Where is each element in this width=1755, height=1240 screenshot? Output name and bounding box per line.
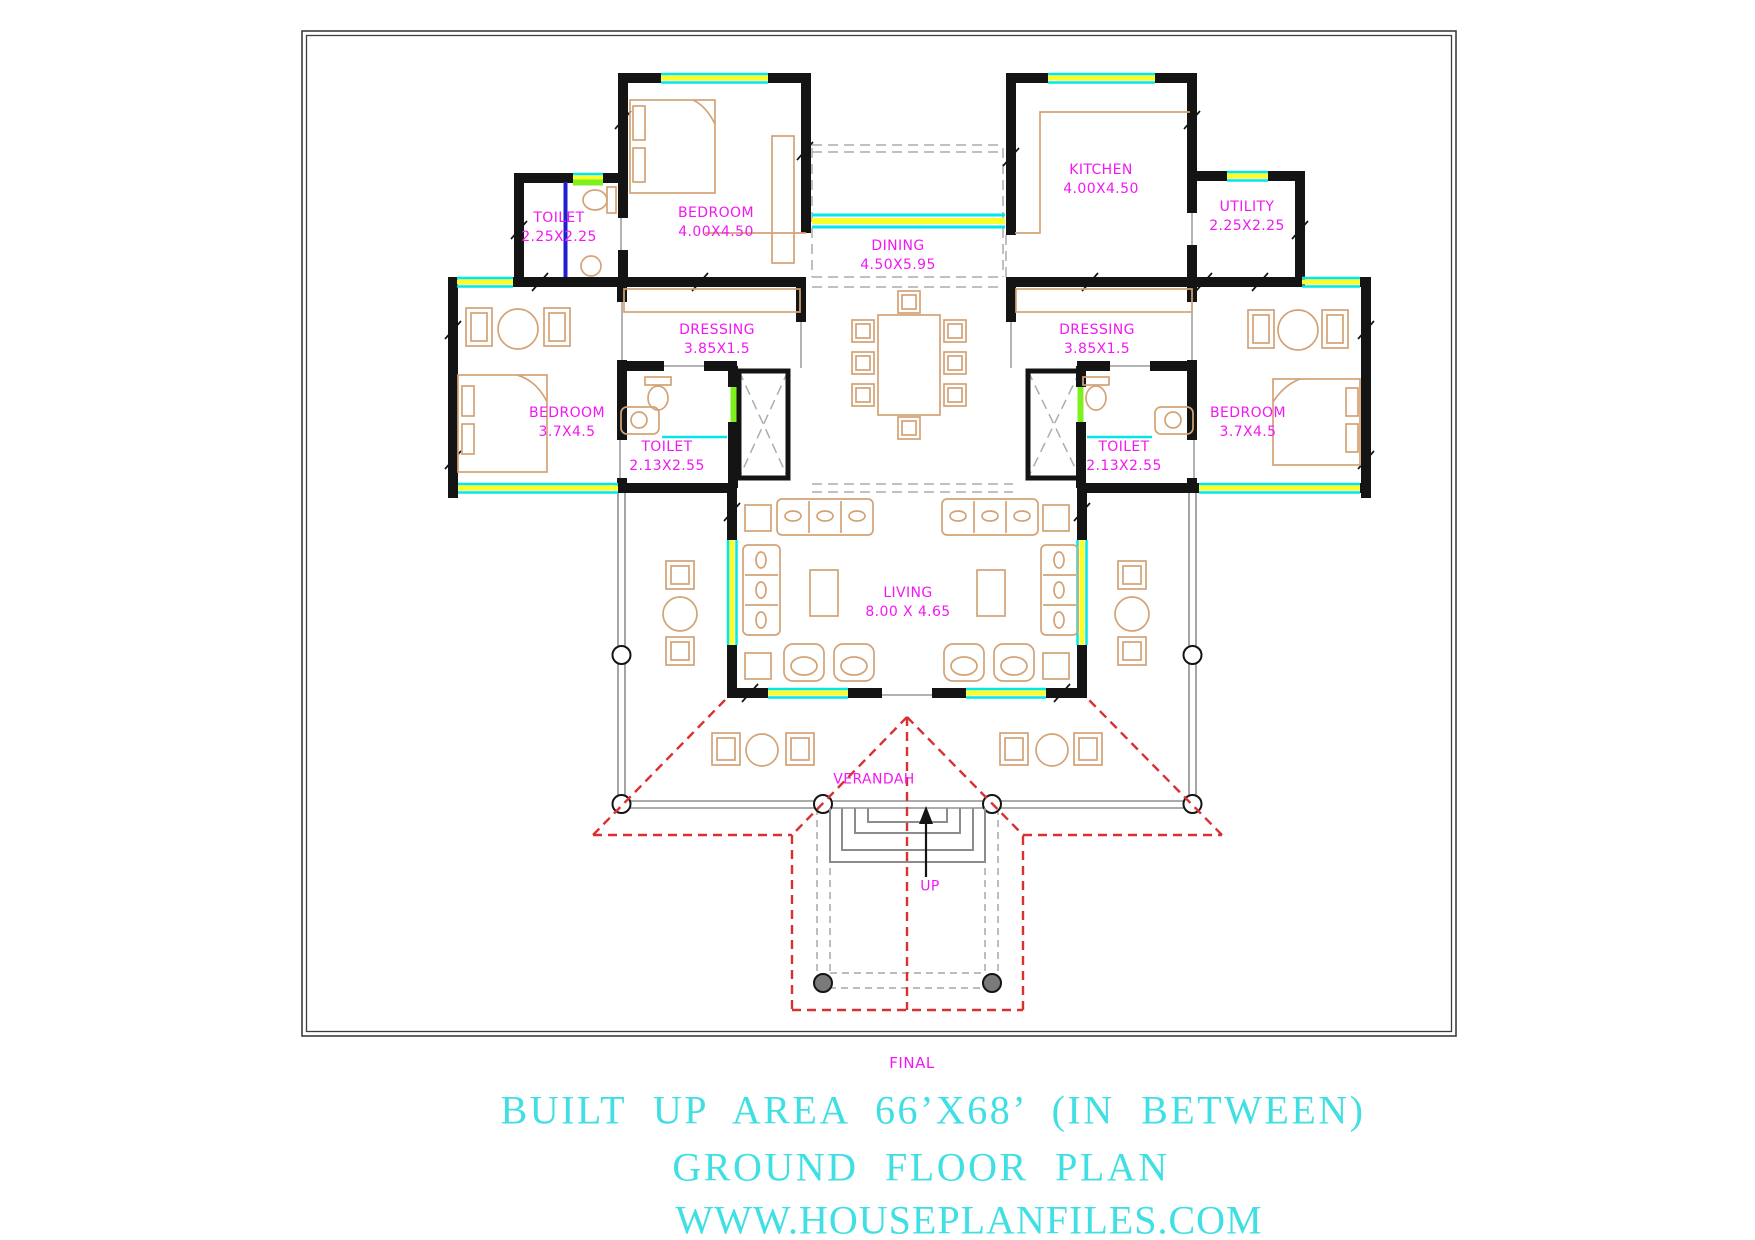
window-toilet-top [573,174,603,183]
title-ground-floor-plan: GROUND FLOOR PLAN [672,1144,1169,1191]
room-name: BEDROOM [529,404,605,423]
up-text: UP [920,878,940,897]
room-label-dining: DINING 4.50X5.95 [860,237,936,275]
room-name: TOILET [1086,438,1162,457]
room-dims: 2.13X2.55 [629,457,705,476]
final-label: FINAL [889,1054,934,1072]
room-name: TOILET [521,209,597,228]
room-dims: 2.25X2.25 [1209,217,1285,236]
room-dims: 3.7X4.5 [529,423,605,442]
window-left-wing-top [457,278,513,287]
room-label-kitchen: KITCHEN 4.00X4.50 [1063,161,1139,199]
room-dims: 3.7X4.5 [1210,423,1286,442]
floor-plan-sheet: TOILET 2.25X2.25 BEDROOM 4.00X4.50 DININ… [0,0,1755,1240]
roof-red-dashed-lines [593,700,1222,1010]
room-dims: 2.25X2.25 [521,228,597,247]
room-name: UTILITY [1209,198,1285,217]
up-label: UP [920,878,940,897]
table-set-bedroom-right [1248,310,1348,350]
room-label-dressing-right: DRESSING 3.85X1.5 [1059,321,1135,359]
room-label-bedroom-top: BEDROOM 4.00X4.50 [678,204,754,242]
room-label-dressing-left: DRESSING 3.85X1.5 [679,321,755,359]
room-dims: 4.50X5.95 [860,256,936,275]
room-name: KITCHEN [1063,161,1139,180]
armchairs [784,644,1034,681]
title-website: WWW.HOUSEPLANFILES.COM [675,1197,1262,1240]
room-label-toilet-left: TOILET 2.13X2.55 [629,438,705,476]
room-name: BEDROOM [1210,404,1286,423]
window-bedroom-top [661,74,768,83]
room-dims: 3.85X1.5 [679,340,755,359]
room-label-verandah: VERANDAH [833,771,914,790]
room-dims: 4.00X4.50 [678,223,754,242]
room-name: BEDROOM [678,204,754,223]
sheet-border [302,31,1456,1036]
room-name: VERANDAH [833,771,914,790]
room-name: DINING [860,237,936,256]
room-name: LIVING [865,584,950,603]
bed-bedroom-right [1273,379,1360,465]
window-left-wing-bottom [458,484,618,493]
wardrobe-dressing-left [624,289,800,312]
window-dining-band [812,215,1005,227]
wardrobe-dressing-right [1016,289,1192,312]
toilet-right-fixtures [1083,377,1193,434]
dining-table-set [852,291,966,439]
window-living-bottom-right [966,689,1046,698]
room-dims: 8.00 X 4.65 [865,603,950,622]
room-label-toilet-top: TOILET 2.25X2.25 [521,209,597,247]
window-utility [1227,172,1268,181]
title-built-up-area: BUILT UP AREA 66’X68’ (IN BETWEEN) [501,1087,1366,1134]
window-right-wing-top [1302,278,1360,287]
toilet-left-fixtures [621,377,671,434]
window-kitchen [1048,74,1155,83]
room-label-utility: UTILITY 2.25X2.25 [1209,198,1285,236]
room-label-bedroom-left: BEDROOM 3.7X4.5 [529,404,605,442]
window-living-left [728,540,737,645]
room-dims: 3.85X1.5 [1059,340,1135,359]
room-name: DRESSING [679,321,755,340]
window-right-wing-bottom [1199,484,1360,493]
room-dims: 2.13X2.55 [1086,457,1162,476]
room-label-bedroom-right: BEDROOM 3.7X4.5 [1210,404,1286,442]
room-dims: 4.00X4.50 [1063,180,1139,199]
table-set-bedroom-left [466,308,570,349]
window-living-bottom-left [768,689,848,698]
room-name: TOILET [629,438,705,457]
room-name: DRESSING [1059,321,1135,340]
room-label-living: LIVING 8.00 X 4.65 [865,584,950,622]
room-label-toilet-right: TOILET 2.13X2.55 [1086,438,1162,476]
